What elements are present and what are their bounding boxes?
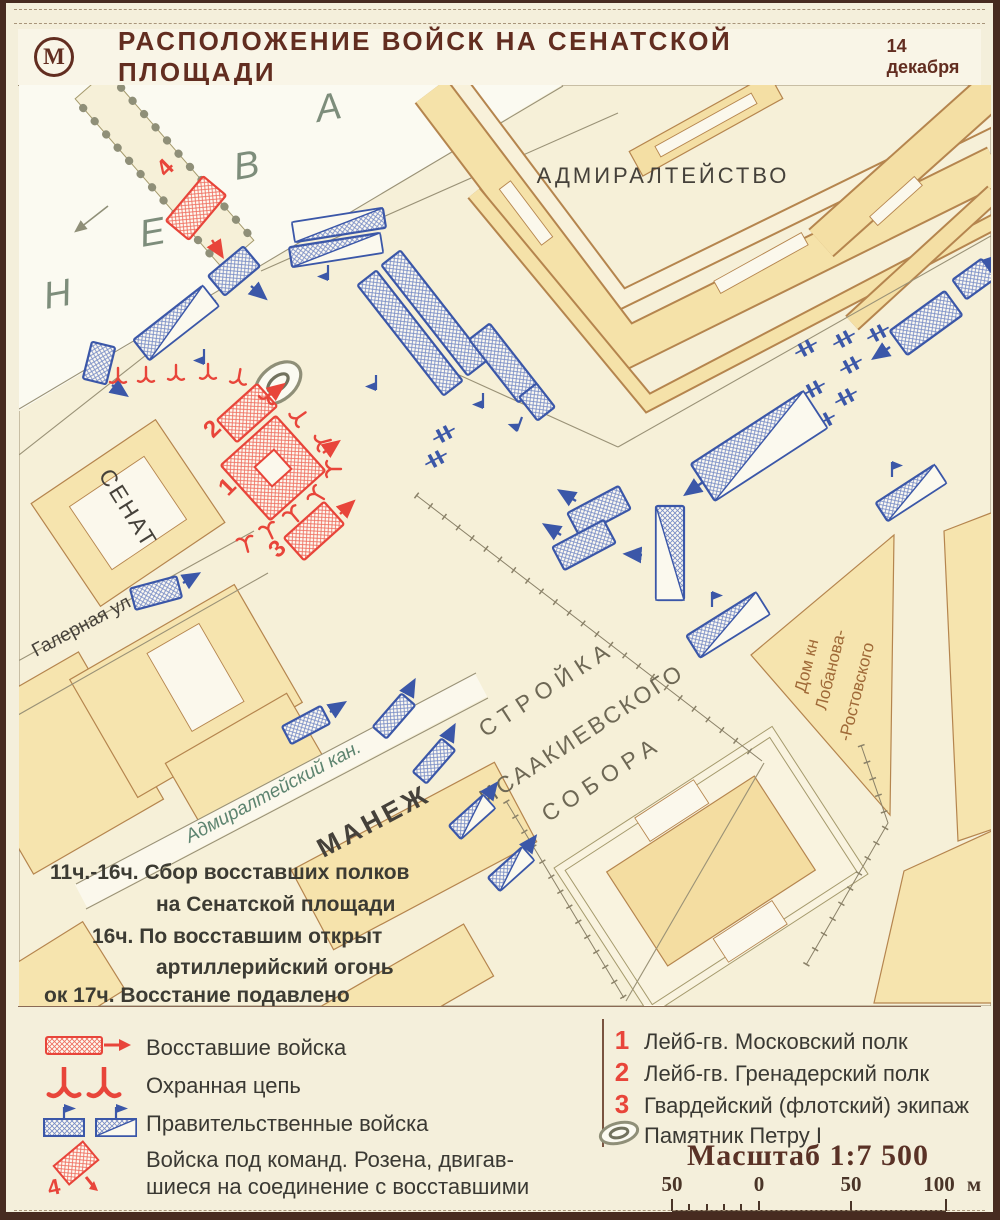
legend-label-rosen-1: Войска под команд. Розена, двигав- bbox=[146, 1147, 514, 1173]
rosen-troops-icon: 4 bbox=[42, 1139, 142, 1201]
svg-text:4: 4 bbox=[45, 1173, 63, 1200]
legend-label-grenadersky: Лейб-гв. Гренадерский полк bbox=[644, 1061, 929, 1087]
svg-text:ок 17ч. Восстание подавлено: ок 17ч. Восстание подавлено bbox=[44, 984, 350, 1006]
m-logo-icon: М bbox=[34, 37, 74, 77]
svg-text:11ч.-16ч. Сбор восставших полк: 11ч.-16ч. Сбор восставших полков bbox=[50, 861, 410, 884]
rebel-troops-icon bbox=[42, 1029, 142, 1061]
legend-label-chain: Охранная цепь bbox=[146, 1073, 301, 1099]
svg-text:50: 50 bbox=[841, 1173, 862, 1196]
page-title-date: 14 декабря bbox=[887, 36, 981, 78]
frame-rule-top2 bbox=[14, 23, 985, 24]
svg-text:м: м bbox=[967, 1173, 981, 1196]
svg-text:16ч. По восставшим открыт: 16ч. По восставшим открыт bbox=[92, 925, 382, 948]
admiralty-label: АДМИРАЛТЕЙСТВО bbox=[537, 163, 790, 188]
scale-title: Масштаб 1:7 500 bbox=[618, 1139, 998, 1173]
legend-num-2: 2 bbox=[610, 1057, 634, 1088]
legend-num-1: 1 bbox=[610, 1025, 634, 1056]
legend-label-rosen-2: шиеся на соединение с восставшими bbox=[146, 1174, 529, 1200]
legend-label-ekipazh: Гвардейский (флотский) экипаж bbox=[644, 1093, 969, 1119]
svg-text:на Сенатской площади: на Сенатской площади bbox=[156, 893, 395, 916]
svg-text:артиллерийский огонь: артиллерийский огонь bbox=[156, 956, 394, 979]
page-title: РАСПОЛОЖЕНИЕ ВОЙСК НА СЕНАТСКОЙ ПЛОЩАДИ bbox=[118, 26, 873, 88]
map-sheet: М РАСПОЛОЖЕНИЕ ВОЙСК НА СЕНАТСКОЙ ПЛОЩАД… bbox=[0, 0, 1000, 1220]
frame-rule-top1 bbox=[14, 9, 985, 10]
scale-bar: 50 0 50 100 м bbox=[644, 1173, 994, 1220]
svg-text:50: 50 bbox=[662, 1173, 683, 1196]
government-troops-icon bbox=[42, 1101, 142, 1141]
guard-chain-icon bbox=[42, 1067, 142, 1101]
frame-rule-bottom bbox=[14, 1210, 985, 1211]
legend-label-rebel: Восставшие войска bbox=[146, 1035, 346, 1061]
legend-label-moskovsky: Лейб-гв. Московский полк bbox=[644, 1029, 908, 1055]
battle-map: АДМИРАЛТЕЙСТВО СЕНАТ МАНЕЖ Галерная ул. … bbox=[19, 85, 991, 1006]
svg-text:100: 100 bbox=[923, 1173, 955, 1196]
legend: 4 Восставшие войска Охранная цепь Правит… bbox=[18, 1006, 981, 1210]
title-bar: М РАСПОЛОЖЕНИЕ ВОЙСК НА СЕНАТСКОЙ ПЛОЩАД… bbox=[18, 29, 981, 86]
legend-label-government: Правительственные войска bbox=[146, 1111, 428, 1137]
svg-text:0: 0 bbox=[754, 1173, 765, 1196]
